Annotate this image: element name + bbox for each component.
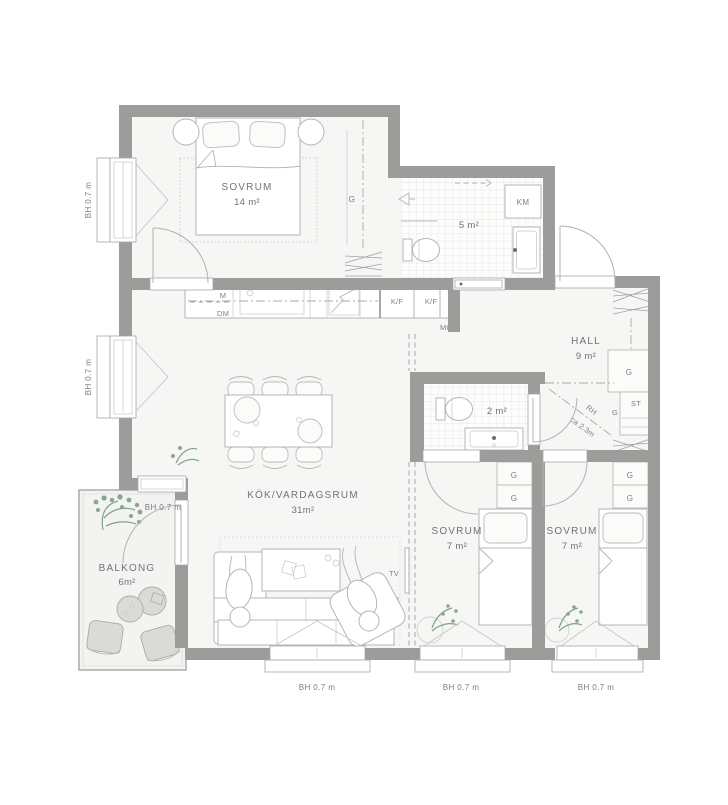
balcony-table [117,596,143,622]
wardrobe-label: G [627,471,634,480]
bedroom-right-label: SOVRUM [546,526,597,537]
window-height-label: BH 0.7 m [299,683,336,692]
window-height-label: BH 0.7 m [84,359,93,396]
tv [405,548,409,593]
hall-area: 9 m² [576,351,596,362]
toilet [403,239,440,262]
bedroom-left-area: 7 m² [447,541,467,552]
dining-set [225,377,332,469]
bedroom-right-area: 7 m² [562,541,582,552]
wardrobe-label: G [626,368,633,377]
balcony-label: BALKONG [99,563,156,574]
kitchen-living-label: KÖK/VARDAGSRUM [247,489,359,501]
wardrobe-label: G [511,471,518,480]
bedroom-main-label: SOVRUM [221,182,272,193]
window-height-label: BH 0.7 m [145,503,182,512]
tv-label: TV [389,569,399,578]
toilet [436,398,473,421]
nightstand [298,119,324,145]
bedroom-left-label: SOVRUM [431,526,482,537]
window-height-label: BH 0.7 m [443,683,480,692]
pillow [202,121,240,148]
fridge-label: K/F [391,297,403,306]
kitchen-living-area: 31m² [292,505,315,516]
bedroom-main-area: 14 m² [234,197,260,208]
window-height-label: BH 0.7 m [84,182,93,219]
wardrobe-label: G [349,195,356,204]
washing-machine-label: KM [517,198,530,207]
pillow [603,513,643,543]
nightstand [173,119,199,145]
bathroom-sink [513,227,540,273]
floor-plan: BALKONG 6m² [0,0,728,800]
balcony-chair [86,620,124,656]
dishwasher-label: DM [217,309,229,318]
freezer-label: K/F [425,297,437,306]
bathroom-large-area: 5 m² [459,220,479,231]
window-height-label: BH 0.7 m [578,683,615,692]
floor-plan-page: BALKONG 6m² [0,0,728,800]
microwave-label: M [220,291,226,300]
balcony-area: 6m² [118,577,135,588]
bathroom-small-area: 2 m² [487,406,507,417]
wardrobe-label: G [627,494,634,503]
wardrobe-label: G [511,494,518,503]
pillow [484,513,527,543]
hall-label: HALL [571,336,601,347]
bathroom-sink [465,428,523,450]
cleaning-closet-label: ST [631,399,641,408]
balcony: BALKONG 6m² [79,490,186,670]
pillow [249,121,285,148]
wardrobe-label: G [612,408,618,417]
